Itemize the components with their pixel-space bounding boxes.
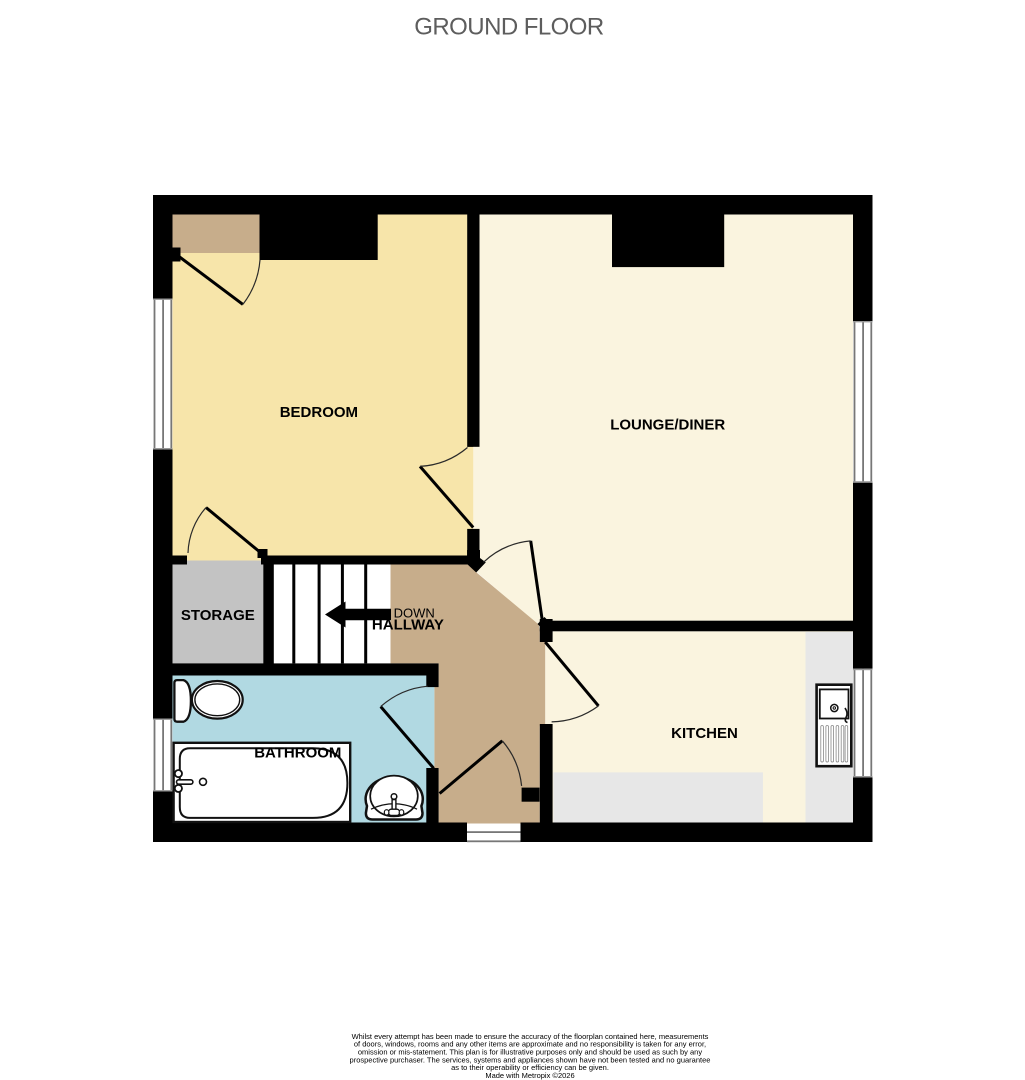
svg-text:HALLWAY: HALLWAY [372,616,444,633]
svg-text:LOUNGE/DINER: LOUNGE/DINER [610,416,725,433]
svg-text:BATHROOM: BATHROOM [254,744,341,761]
svg-text:Made with Metropix ©2026: Made with Metropix ©2026 [485,1071,574,1080]
svg-text:KITCHEN: KITCHEN [671,725,738,742]
svg-text:BEDROOM: BEDROOM [280,404,358,421]
svg-text:GROUND FLOOR: GROUND FLOOR [414,14,604,41]
svg-text:STORAGE: STORAGE [181,607,255,624]
